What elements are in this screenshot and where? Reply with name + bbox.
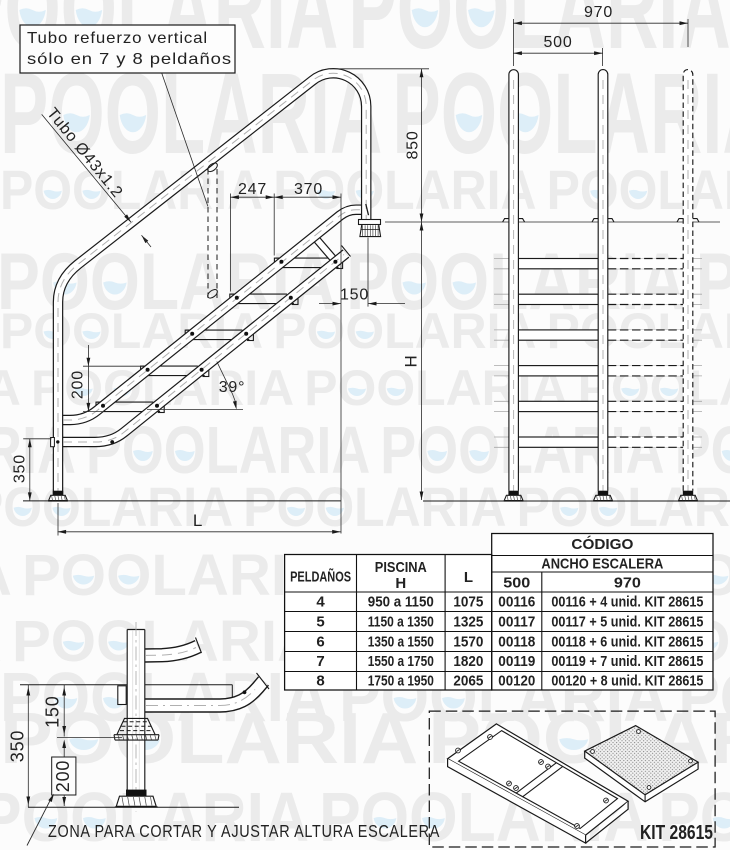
svg-text:00117 + 5 unid. KIT 28615: 00117 + 5 unid. KIT 28615	[551, 614, 703, 631]
svg-text:150: 150	[340, 287, 369, 304]
svg-text:00119 + 7 unid. KIT 28615: 00119 + 7 unid. KIT 28615	[551, 653, 703, 670]
svg-text:H: H	[402, 354, 421, 367]
svg-text:350: 350	[12, 454, 29, 483]
svg-text:39°: 39°	[219, 379, 246, 396]
svg-text:1570: 1570	[453, 634, 483, 651]
svg-text:850: 850	[405, 130, 422, 159]
svg-text:370: 370	[294, 181, 323, 198]
svg-text:00118 + 6 unid. KIT 28615: 00118 + 6 unid. KIT 28615	[551, 634, 703, 651]
svg-text:5: 5	[316, 614, 324, 631]
svg-text:00117: 00117	[498, 614, 535, 631]
svg-text:1075: 1075	[453, 594, 483, 611]
svg-text:1820: 1820	[453, 653, 483, 670]
svg-text:2065: 2065	[453, 673, 483, 690]
svg-text:6: 6	[316, 634, 324, 651]
svg-text:200: 200	[53, 760, 73, 792]
svg-text:150: 150	[43, 695, 63, 727]
svg-text:7: 7	[316, 653, 324, 670]
svg-text:KIT 28615: KIT 28615	[640, 822, 713, 844]
svg-text:H: H	[395, 575, 406, 592]
svg-text:00120: 00120	[498, 673, 535, 690]
svg-text:ANCHO ESCALERA: ANCHO ESCALERA	[541, 556, 663, 573]
svg-text:CÓDIGO: CÓDIGO	[571, 535, 633, 553]
svg-text:200: 200	[70, 370, 87, 399]
svg-text:970: 970	[584, 4, 613, 21]
svg-text:950 a 1150: 950 a 1150	[368, 594, 434, 611]
svg-text:00118: 00118	[498, 634, 535, 651]
svg-text:00120 + 8 unid. KIT 28615: 00120 + 8 unid. KIT 28615	[551, 673, 703, 690]
svg-text:350: 350	[8, 730, 28, 762]
svg-text:PELDAÑOS: PELDAÑOS	[290, 568, 351, 586]
svg-text:sólo en 7 y 8 peldaños: sólo en 7 y 8 peldaños	[27, 51, 232, 68]
svg-text:247: 247	[238, 181, 267, 198]
svg-text:4: 4	[316, 594, 325, 611]
svg-text:L: L	[193, 511, 203, 530]
svg-text:1325: 1325	[453, 614, 483, 631]
svg-text:1550 a 1750: 1550 a 1750	[368, 653, 434, 670]
svg-text:970: 970	[614, 575, 641, 592]
svg-text:L: L	[464, 569, 473, 586]
svg-text:1150 a 1350: 1150 a 1350	[368, 614, 434, 631]
svg-text:500: 500	[543, 34, 572, 51]
svg-text:ZONA PARA CORTAR Y AJUSTAR ALT: ZONA PARA CORTAR Y AJUSTAR ALTURA ESCALE…	[48, 821, 440, 841]
svg-text:PISCINA: PISCINA	[375, 559, 427, 576]
svg-text:00119: 00119	[498, 653, 535, 670]
svg-text:00116 + 4 unid. KIT 28615: 00116 + 4 unid. KIT 28615	[551, 594, 703, 611]
svg-text:00116: 00116	[498, 594, 535, 611]
svg-text:1750 a 1950: 1750 a 1950	[368, 673, 434, 690]
svg-text:1350 a 1550: 1350 a 1550	[368, 634, 434, 651]
svg-text:Tubo refuerzo vertical: Tubo refuerzo vertical	[27, 30, 208, 47]
svg-text:8: 8	[316, 673, 324, 690]
svg-text:500: 500	[503, 575, 530, 592]
